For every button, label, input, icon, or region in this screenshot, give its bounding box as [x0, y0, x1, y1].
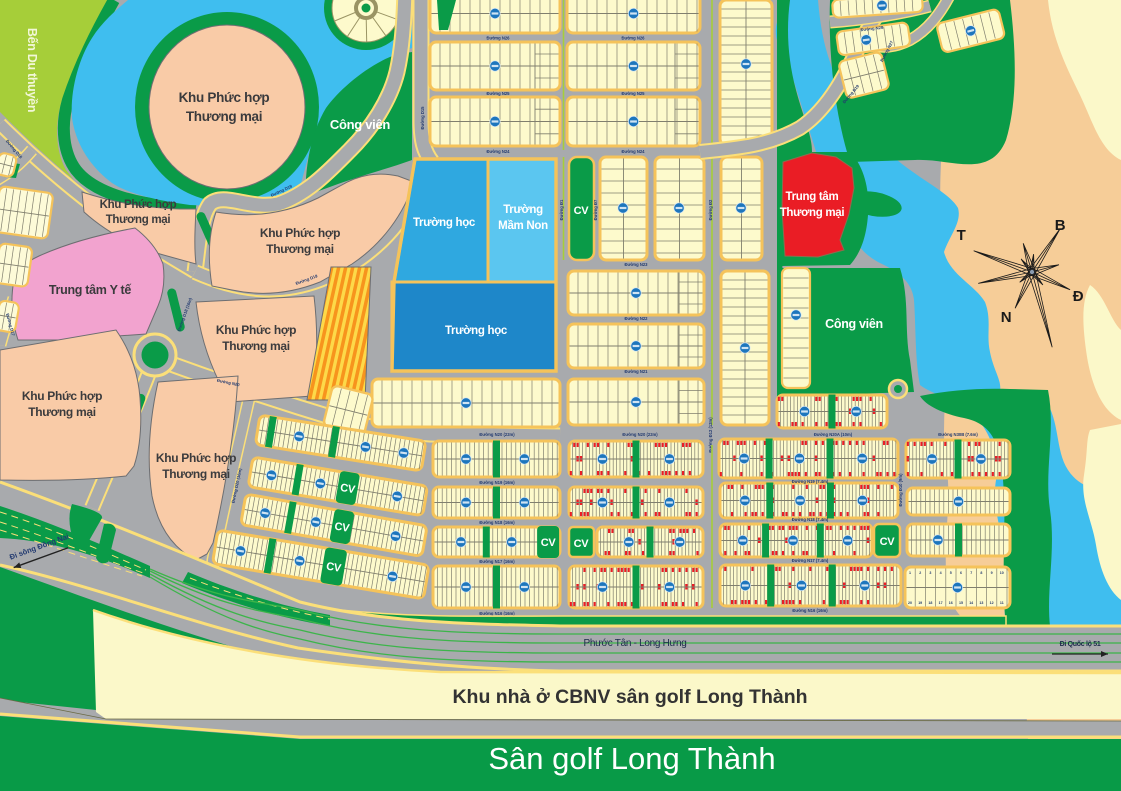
svg-text:Phước Tân - Long Hưng: Phước Tân - Long Hưng: [584, 638, 687, 649]
svg-text:4: 4: [940, 571, 942, 575]
svg-text:Khu Phức hợp: Khu Phức hợp: [22, 389, 102, 403]
svg-text:N: N: [1001, 309, 1012, 326]
svg-text:Đường N24: Đường N24: [622, 149, 646, 154]
svg-text:Đường N17 (16m): Đường N17 (16m): [479, 559, 515, 564]
svg-text:16: 16: [949, 601, 953, 605]
svg-text:CV: CV: [574, 205, 590, 217]
svg-text:Thương mại: Thương mại: [28, 405, 96, 419]
svg-text:Đường N24: Đường N24: [487, 149, 511, 154]
svg-text:Thương mại: Thương mại: [106, 214, 171, 226]
svg-text:15: 15: [959, 601, 963, 605]
svg-text:Đường N20 (22m): Đường N20 (22m): [622, 432, 658, 437]
svg-text:18: 18: [928, 601, 932, 605]
svg-text:13: 13: [979, 601, 983, 605]
svg-text:7: 7: [970, 571, 972, 575]
svg-text:CV: CV: [325, 560, 342, 574]
svg-text:Trường học: Trường học: [445, 325, 508, 337]
svg-text:Đường N26: Đường N26: [622, 36, 646, 41]
svg-text:B: B: [1055, 217, 1066, 234]
svg-text:Đường N18 (7.4m): Đường N18 (7.4m): [792, 517, 829, 522]
svg-text:14: 14: [969, 601, 973, 605]
svg-text:11: 11: [1000, 601, 1004, 605]
svg-text:Đường N25: Đường N25: [622, 91, 646, 96]
svg-text:Đường N21: Đường N21: [625, 369, 649, 374]
svg-text:Thương mại: Thương mại: [780, 207, 845, 219]
svg-text:T: T: [957, 227, 966, 244]
svg-text:Khu Phức hợp: Khu Phức hợp: [179, 90, 270, 105]
svg-text:CV: CV: [541, 537, 557, 549]
svg-text:1: 1: [909, 571, 911, 575]
svg-text:Đường Đ2: Đường Đ2: [708, 199, 713, 220]
svg-text:Đường N18 (16m): Đường N18 (16m): [479, 520, 515, 525]
svg-text:Đường N25: Đường N25: [487, 91, 511, 96]
svg-text:Đường N17 (7.4m): Đường N17 (7.4m): [792, 558, 829, 563]
svg-text:6: 6: [960, 571, 962, 575]
svg-text:Công viên: Công viên: [825, 317, 883, 331]
svg-text:10: 10: [1000, 571, 1004, 575]
svg-text:Đường Đ1: Đường Đ1: [559, 199, 564, 220]
svg-text:Đường Đ10 (9m): Đường Đ10 (9m): [898, 473, 903, 507]
svg-text:5: 5: [950, 571, 952, 575]
svg-text:2: 2: [919, 571, 921, 575]
svg-text:Công viên: Công viên: [330, 117, 390, 132]
svg-text:Đường Đ7: Đường Đ7: [593, 199, 598, 220]
svg-text:Trường: Trường: [503, 204, 543, 216]
svg-text:Đường N19 (16m): Đường N19 (16m): [479, 480, 515, 485]
svg-text:Đường N20A (10m): Đường N20A (10m): [814, 432, 853, 437]
svg-text:Thương mại: Thương mại: [222, 339, 290, 353]
svg-text:9: 9: [991, 571, 993, 575]
svg-text:Đ: Đ: [1073, 288, 1084, 305]
svg-text:Khu Phức hợp: Khu Phức hợp: [260, 226, 340, 240]
svg-text:Trường học: Trường học: [413, 217, 476, 229]
svg-text:Đường N22: Đường N22: [625, 316, 649, 321]
svg-text:Đường N30B (7.6m): Đường N30B (7.6m): [938, 432, 978, 437]
svg-text:17: 17: [939, 601, 943, 605]
svg-text:Đường N16 (16m): Đường N16 (16m): [479, 611, 515, 616]
svg-text:Khu Phức hợp: Khu Phức hợp: [216, 323, 296, 337]
svg-text:Sân golf Long Thành: Sân golf Long Thành: [488, 741, 775, 776]
svg-text:Đường N16 (16m): Đường N16 (16m): [792, 608, 828, 613]
svg-text:Trung tâm Y tế: Trung tâm Y tế: [49, 283, 132, 297]
svg-text:Đường N20 (22m): Đường N20 (22m): [479, 432, 515, 437]
svg-text:12: 12: [990, 601, 994, 605]
svg-text:3: 3: [929, 571, 931, 575]
svg-text:Đường N26: Đường N26: [487, 36, 511, 41]
svg-text:CV: CV: [339, 482, 356, 496]
svg-text:Trung tâm: Trung tâm: [786, 191, 839, 203]
svg-text:Thương mại: Thương mại: [162, 467, 230, 481]
svg-text:8: 8: [980, 571, 982, 575]
svg-text:Đi Quốc lộ 51: Đi Quốc lộ 51: [1060, 640, 1101, 648]
svg-text:CV: CV: [574, 538, 590, 550]
svg-text:Mầm Non: Mầm Non: [498, 220, 548, 232]
svg-text:CV: CV: [880, 536, 896, 548]
svg-text:20: 20: [908, 601, 912, 605]
svg-text:Đường N23: Đường N23: [625, 262, 649, 267]
svg-text:Khu nhà ở CBNV sân golf Long T: Khu nhà ở CBNV sân golf Long Thành: [452, 686, 807, 708]
svg-text:Thương mại: Thương mại: [266, 242, 334, 256]
svg-text:Thương mại: Thương mại: [186, 109, 262, 124]
svg-text:Đường N19 (7.4m): Đường N19 (7.4m): [792, 479, 829, 484]
svg-text:Đường D15: Đường D15: [420, 106, 425, 130]
svg-text:19: 19: [918, 601, 922, 605]
svg-text:Khu Phức hợp: Khu Phức hợp: [100, 199, 177, 211]
svg-text:Bến Du thuyền: Bến Du thuyền: [25, 28, 39, 112]
svg-text:Khu Phức hợp: Khu Phức hợp: [156, 451, 236, 465]
